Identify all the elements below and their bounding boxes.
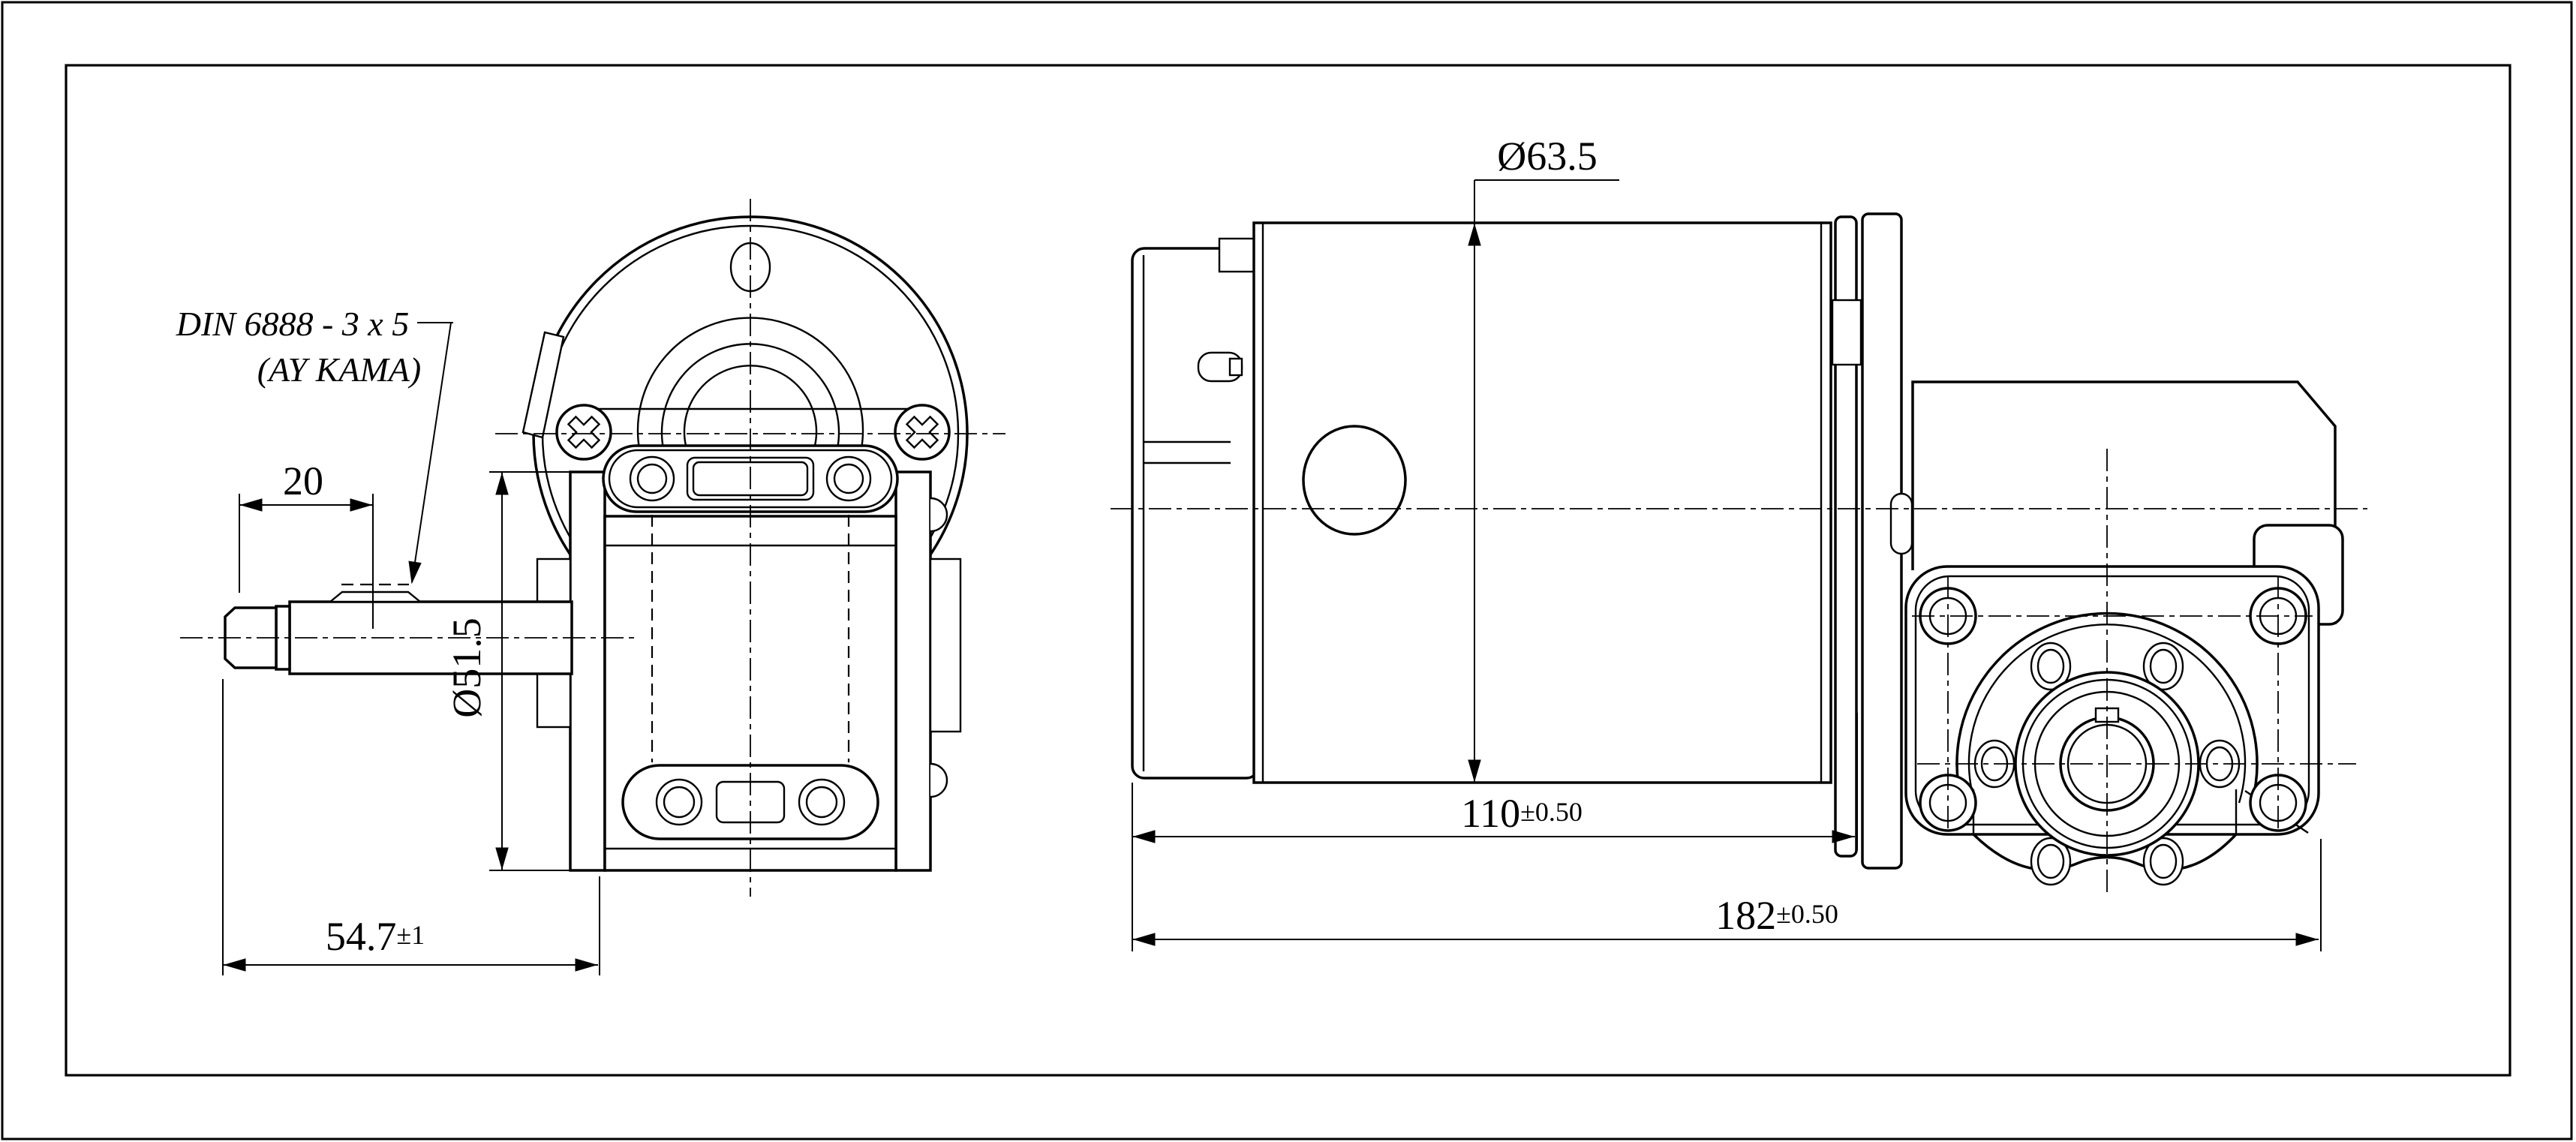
dim-motor-diameter-text: Ø63.5 — [1497, 134, 1598, 179]
plate-boss — [1891, 494, 1912, 554]
dim-tolerance: ±1 — [396, 920, 425, 950]
terminal-screw-hole-left — [630, 457, 674, 500]
phillips-screw-right — [895, 405, 949, 459]
motor-body — [1254, 223, 1831, 783]
dim-value: 110 — [1461, 791, 1520, 836]
technical-drawing-canvas: DIN 6888 - 3 x 5 (AY KAMA) 20 Ø51.5 — [0, 0, 2576, 1142]
dim-key-position-text: 20 — [283, 458, 323, 503]
gearbox-plate-left — [570, 472, 605, 870]
drawing-sheet: DIN 6888 - 3 x 5 (AY KAMA) 20 Ø51.5 — [0, 0, 2576, 1142]
rear-end-cap — [1132, 248, 1258, 778]
dim-tolerance: ±0.50 — [1776, 899, 1838, 929]
woodruff-key-seat — [330, 592, 420, 602]
latch-clip — [1832, 300, 1861, 365]
terminal-screw-hole-right — [827, 457, 870, 500]
right-block — [930, 559, 960, 732]
dim-boss-diameter-text: Ø51.5 — [444, 618, 489, 718]
key-standard-note-text: (AY KAMA) — [257, 350, 421, 389]
end-cap-tab — [1219, 239, 1254, 272]
phillips-screw-left — [557, 405, 611, 459]
dim-tolerance: ±0.50 — [1520, 797, 1583, 827]
key-standard-text: DIN 6888 - 3 x 5 — [176, 305, 409, 343]
gearbox-plate-right — [896, 472, 930, 870]
dim-value: 54.7 — [326, 914, 397, 959]
dim-value: 182 — [1715, 893, 1776, 938]
